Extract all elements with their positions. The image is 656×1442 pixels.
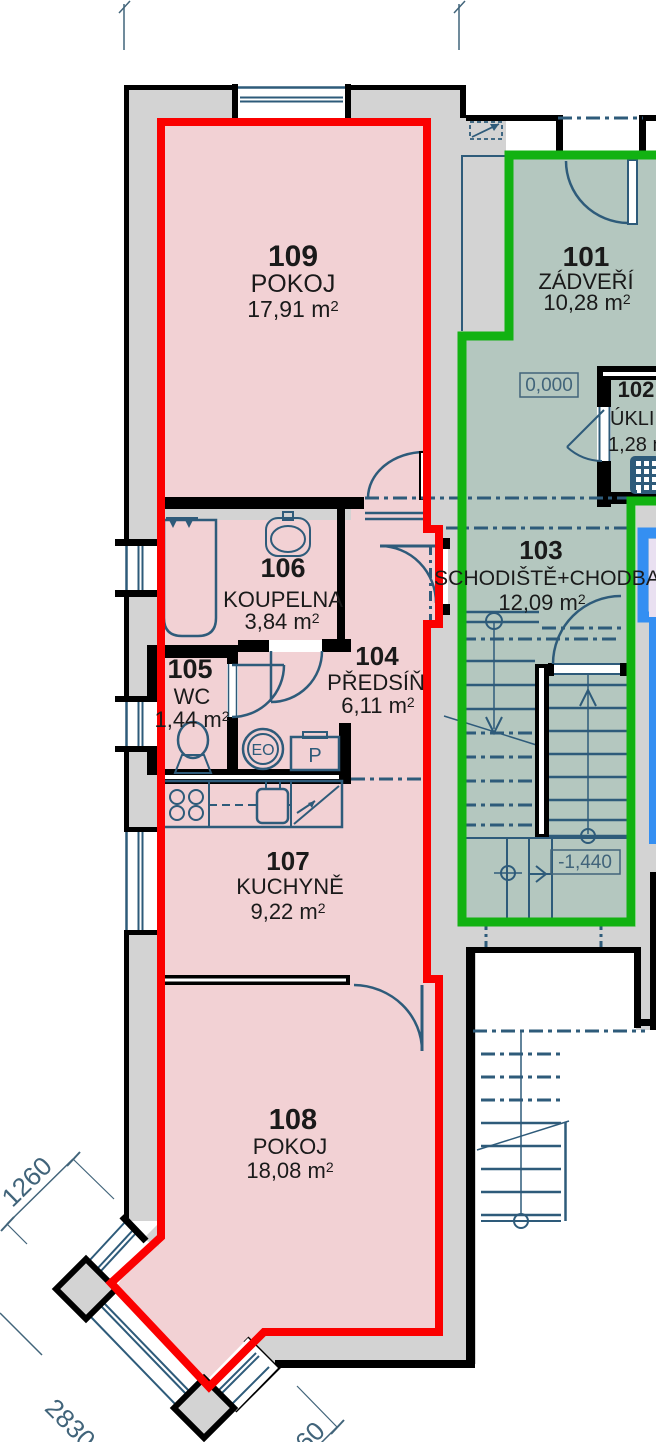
- svg-text:18,08 m2: 18,08 m2: [246, 1158, 334, 1183]
- svg-text:POKOJ: POKOJ: [253, 1134, 328, 1159]
- svg-text:102: 102: [618, 377, 655, 402]
- svg-text:103: 103: [519, 535, 562, 565]
- svg-text:109: 109: [268, 240, 318, 273]
- svg-text:POKOJ: POKOJ: [251, 270, 336, 298]
- svg-text:0,000: 0,000: [525, 375, 573, 396]
- svg-text:107: 107: [266, 846, 309, 876]
- svg-text:P: P: [308, 745, 321, 767]
- svg-text:105: 105: [167, 654, 212, 684]
- svg-text:101: 101: [563, 241, 610, 272]
- svg-text:108: 108: [269, 1104, 317, 1136]
- svg-text:KUCHYNĚ: KUCHYNĚ: [236, 874, 344, 899]
- svg-text:17,91 m2: 17,91 m2: [247, 296, 338, 322]
- svg-text:1,44 m2: 1,44 m2: [154, 707, 229, 732]
- svg-text:104: 104: [355, 641, 399, 671]
- svg-text:ÚKLIDOVÁ: ÚKLIDOVÁ: [610, 407, 656, 430]
- svg-text:PŘEDSÍŇ: PŘEDSÍŇ: [327, 670, 425, 695]
- svg-text:SCHODIŠTĚ+CHODBA: SCHODIŠTĚ+CHODBA: [434, 567, 656, 590]
- svg-text:12,09 m2: 12,09 m2: [498, 590, 586, 615]
- svg-text:3,84 m2: 3,84 m2: [244, 609, 319, 634]
- svg-text:1,28 m2: 1,28 m2: [608, 433, 656, 456]
- svg-text:WC: WC: [174, 684, 211, 709]
- svg-text:9,22 m2: 9,22 m2: [250, 899, 325, 924]
- svg-text:-1,440: -1,440: [558, 852, 612, 873]
- svg-text:EO: EO: [251, 742, 274, 759]
- svg-text:106: 106: [260, 553, 305, 583]
- svg-text:10,28 m2: 10,28 m2: [543, 290, 631, 315]
- svg-text:6,11 m2: 6,11 m2: [341, 693, 415, 718]
